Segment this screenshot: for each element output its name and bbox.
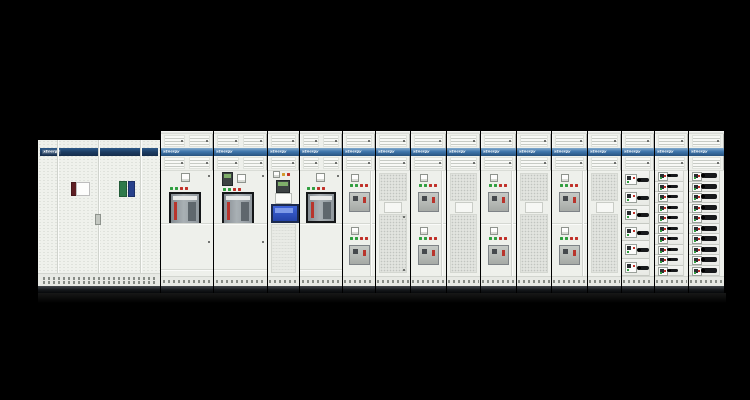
roof: [411, 131, 446, 134]
brand-label: xEnergy: [657, 150, 673, 154]
bottom-vent-strip: [376, 276, 410, 286]
indicator-lights: [489, 237, 507, 240]
brand-stripe: xEnergy: [622, 148, 654, 156]
drawer-stack: [622, 171, 650, 276]
door-seam: [98, 140, 99, 273]
panel-seam: [57, 140, 58, 273]
screw: [403, 216, 405, 218]
indicator-light: [499, 184, 502, 187]
brand-stripe: xEnergy: [343, 148, 375, 156]
drawer-module-face: [658, 256, 668, 265]
brand-label: xEnergy: [590, 150, 606, 154]
drawer-module-face: [625, 209, 637, 220]
door-tag-blue: [128, 181, 135, 197]
vent-band: [379, 157, 407, 169]
indicator-light: [360, 237, 363, 240]
drawer-unit: [622, 259, 649, 277]
cabinet-4-control-hmi: xEnergy: [268, 131, 299, 293]
indicator-light: [504, 237, 507, 240]
drawer-unit: [689, 266, 719, 277]
bottom-vent-strip: [214, 276, 267, 286]
drawer-handle[interactable]: [703, 194, 717, 199]
drawer-unit: [689, 182, 719, 193]
test-button[interactable]: [490, 227, 498, 235]
plinth: [161, 286, 213, 293]
equipment-door: [552, 170, 587, 276]
vent-band: [414, 157, 443, 169]
drawer-handle[interactable]: [639, 248, 649, 252]
mccb-breaker-window: [488, 192, 509, 212]
reset-button[interactable]: [237, 174, 246, 183]
plinth: [300, 286, 342, 293]
indicator-light: [322, 187, 325, 190]
indicator-light: [660, 188, 662, 190]
indicator-light: [660, 240, 662, 242]
indicator-light: [660, 177, 662, 179]
indicator-light: [660, 219, 662, 221]
brand-stripe: xEnergy: [376, 148, 410, 156]
indicator-light: [504, 184, 507, 187]
drawer-handle[interactable]: [669, 216, 678, 219]
brand-label: xEnergy: [483, 150, 499, 154]
plinth: [655, 286, 688, 293]
floor-reflection: [38, 293, 726, 303]
plinth: [343, 286, 375, 293]
indicator-light: [575, 184, 578, 187]
indicator-light: [489, 184, 492, 187]
mesh-panel-upper: [379, 173, 407, 201]
mccb-breaker-window: [418, 192, 439, 212]
vent-band: [658, 135, 685, 147]
drawer-unit: [655, 224, 683, 235]
door-seam: [214, 223, 267, 224]
indicator-light: [627, 199, 629, 201]
brand-stripe: xEnergy: [268, 148, 299, 156]
equipment-door: [588, 170, 621, 276]
drawer-unit: [655, 203, 683, 214]
indicator-light: [627, 216, 629, 218]
drawer-module-face: [658, 235, 668, 244]
vent-band: [625, 157, 651, 169]
drawer-unit: [622, 241, 649, 259]
bottom-vent-strip: [552, 276, 587, 286]
drawer-stack: [689, 171, 720, 276]
brand-stripe: xEnergy: [552, 148, 587, 156]
plinth: [517, 286, 551, 293]
indicator-light: [489, 237, 492, 240]
cabinet-1-perforated-double-door: xEnergy: [38, 140, 160, 293]
equipment-door: [622, 170, 654, 276]
plinth: [689, 286, 724, 293]
drawer-handle[interactable]: [669, 237, 678, 240]
vent-band: [217, 135, 264, 147]
equipment-door: [376, 170, 410, 276]
drawer-handle[interactable]: [669, 195, 678, 198]
drawer-handle[interactable]: [703, 184, 717, 189]
bottom-vent-strip: [38, 273, 160, 286]
vent-band: [555, 157, 584, 169]
brand-stripe: xEnergy: [481, 148, 516, 156]
drawer-handle[interactable]: [703, 173, 717, 178]
control-button[interactable]: [273, 171, 280, 178]
brand-label: xEnergy: [216, 150, 232, 154]
drawer-module-face: [658, 214, 668, 223]
label-plate: [275, 193, 292, 204]
indicator-light: [350, 184, 353, 187]
acb-face: [171, 194, 199, 223]
side-rail-seam: [441, 171, 442, 276]
cabinet-14-withdrawable-modules: xEnergy: [622, 131, 654, 293]
brand-label: xEnergy: [345, 150, 361, 154]
equipment-door: [481, 170, 516, 276]
indicator-light: [419, 184, 422, 187]
perforated-doors: xEnergy: [38, 140, 160, 273]
air-circuit-breaker-window: [222, 192, 254, 225]
indicator-light: [694, 230, 696, 232]
drawer-unit: [655, 192, 683, 203]
indicator-lights: [560, 237, 578, 240]
brand-label: xEnergy: [163, 150, 179, 154]
bottom-vent-strip: [481, 276, 516, 286]
drawer-handle[interactable]: [639, 178, 649, 182]
indicator-lights: [350, 237, 368, 240]
reset-button[interactable]: [181, 173, 190, 182]
indicator-lights: [419, 237, 437, 240]
brand-stripe: xEnergy: [689, 148, 724, 156]
drawer-unit: [689, 255, 719, 266]
indicator-lights: [560, 184, 578, 187]
equipment-door: [300, 170, 342, 276]
screw: [208, 175, 210, 177]
plinth: [268, 286, 299, 293]
brand-label: xEnergy: [302, 150, 318, 154]
plinth: [447, 286, 480, 293]
indicator-light: [233, 188, 236, 191]
bottom-vent-strip: [622, 276, 654, 286]
plinth: [622, 286, 654, 293]
plinth: [588, 286, 621, 293]
vent-band: [520, 135, 548, 147]
drawer-handle[interactable]: [669, 185, 678, 188]
vent-band: [379, 135, 407, 147]
drawer-unit: [622, 224, 649, 242]
brand-label: xEnergy: [519, 150, 535, 154]
brand-label: xEnergy: [624, 150, 640, 154]
indicator-light: [238, 188, 241, 191]
bottom-vent-strip: [655, 276, 688, 286]
indicator-light: [355, 184, 358, 187]
mccb-breaker-window: [559, 245, 580, 265]
vent-band: [484, 135, 513, 147]
drawer-unit: [655, 213, 683, 224]
test-button[interactable]: [561, 174, 569, 182]
mccb-face: [560, 246, 579, 264]
drawer-handle[interactable]: [669, 248, 678, 251]
drawer-unit: [689, 234, 719, 245]
indicator-light: [694, 261, 696, 263]
reset-button[interactable]: [316, 173, 325, 182]
equipment-door: [268, 170, 299, 276]
cabinet-16-withdrawable-modules-dense: xEnergy: [689, 131, 724, 293]
drawer-handle[interactable]: [703, 268, 717, 273]
roof: [655, 131, 688, 134]
brand-stripe: xEnergy: [411, 148, 446, 156]
screw: [262, 241, 264, 243]
drawer-module-face: [625, 192, 637, 203]
drawer-handle[interactable]: [703, 247, 717, 252]
test-button[interactable]: [420, 174, 428, 182]
drawer-unit: [655, 234, 683, 245]
roof: [588, 131, 621, 134]
indicator-lights: [489, 184, 507, 187]
bottom-vent-strip: [161, 276, 213, 286]
mesh-panel-lower: [591, 214, 618, 273]
vent-band: [555, 135, 584, 147]
side-rail-seam: [582, 171, 583, 276]
drawer-module-face: [625, 244, 637, 255]
drawer-handle[interactable]: [639, 196, 649, 200]
drawer-unit: [689, 245, 719, 256]
indicator-light: [560, 237, 563, 240]
drawer-handle[interactable]: [639, 231, 649, 235]
test-button[interactable]: [351, 174, 359, 182]
roof: [214, 131, 267, 134]
drawer-unit: [689, 213, 719, 224]
indicator-light: [494, 237, 497, 240]
drawer-handle[interactable]: [669, 258, 678, 261]
indicator-light: [355, 237, 358, 240]
drawer-handle[interactable]: [703, 226, 717, 231]
cabinet-5-acb-incomer: xEnergy: [300, 131, 342, 293]
power-meter: [276, 180, 290, 193]
drawer-handle[interactable]: [703, 215, 717, 220]
drawer-unit: [655, 245, 683, 256]
panel-seam: [140, 140, 141, 273]
roof: [689, 131, 724, 134]
vent-band: [346, 135, 372, 147]
drawer-handle[interactable]: [703, 257, 717, 262]
vent-band: [414, 135, 443, 147]
mesh-panel-lower: [520, 214, 548, 273]
mccb-face: [560, 193, 579, 211]
cabinet-12-mccb-feeder: xEnergy: [552, 131, 587, 293]
vent-band: [692, 135, 721, 147]
brand-label: xEnergy: [449, 150, 465, 154]
drawer-unit: [655, 182, 683, 193]
cabinet-7-mesh-door: xEnergy: [376, 131, 410, 293]
indicator-light: [228, 188, 231, 191]
indicator-light: [627, 251, 629, 253]
drawer-module-face: [658, 193, 668, 202]
vent-band: [625, 135, 651, 147]
indicator-light: [627, 181, 629, 183]
door-seam: [300, 269, 342, 270]
brand-stripe: xEnergy: [300, 148, 342, 156]
screw: [403, 269, 405, 271]
brand-stripe: xEnergy: [447, 148, 480, 156]
test-button[interactable]: [561, 227, 569, 235]
vent-band: [692, 157, 721, 169]
drawer-module-face: [658, 172, 668, 181]
cabinet-8-mccb-feeder: xEnergy: [411, 131, 446, 293]
drawer-module-face: [625, 174, 637, 185]
plinth: [552, 286, 587, 293]
drawer-handle[interactable]: [703, 205, 717, 210]
vent-band: [484, 157, 513, 169]
door-tag-green: [119, 181, 127, 197]
plinth: [38, 286, 160, 293]
drawer-stack: [655, 171, 684, 276]
drawer-handle[interactable]: [639, 266, 649, 270]
mccb-face: [419, 193, 438, 211]
roof: [343, 131, 375, 134]
cabinet-10-mccb-feeder: xEnergy: [481, 131, 516, 293]
equipment-door: [343, 170, 375, 276]
equipment-door: [655, 170, 688, 276]
indicator-light: [694, 209, 696, 211]
indicator-light: [175, 187, 178, 190]
plinth: [481, 286, 516, 293]
mccb-face: [350, 246, 369, 264]
indicator-light: [694, 188, 696, 190]
indicator-light: [570, 184, 573, 187]
vent-band: [591, 157, 618, 169]
indicator-lights: [307, 187, 325, 190]
drawer-handle[interactable]: [639, 213, 649, 217]
mccb-breaker-window: [349, 192, 370, 212]
bottom-vent-strip: [300, 276, 342, 286]
indicator-light: [660, 272, 662, 274]
drawer-unit: [689, 203, 719, 214]
roof: [517, 131, 551, 134]
indicator-light: [694, 198, 696, 200]
test-button[interactable]: [351, 227, 359, 235]
mesh-panel-lower: [450, 214, 477, 273]
hmi-screen: [273, 206, 297, 221]
indicator-light: [424, 237, 427, 240]
indicator-light: [694, 272, 696, 274]
drawer-unit: [689, 224, 719, 235]
vent-band: [164, 135, 210, 147]
vent-band: [217, 157, 264, 169]
vent-band: [271, 157, 296, 169]
mccb-face: [419, 246, 438, 264]
drawer-handle[interactable]: [669, 174, 678, 177]
vent-band: [271, 135, 296, 147]
bottom-vent-strip: [689, 276, 724, 286]
brand-stripe: xEnergy: [588, 148, 621, 156]
vent-band: [450, 135, 477, 147]
door-seam: [161, 269, 213, 270]
mccb-breaker-window: [418, 245, 439, 265]
equipment-door: [161, 170, 213, 276]
indicator-light: [434, 184, 437, 187]
indicator-light: [494, 184, 497, 187]
side-rail-seam: [511, 171, 512, 276]
switchgear-lineup: xEnergy xEnergy: [38, 131, 724, 293]
equipment-door: [214, 170, 267, 276]
screw: [337, 175, 339, 177]
roof: [161, 131, 213, 134]
drawer-handle[interactable]: [669, 206, 678, 209]
vent-band: [520, 157, 548, 169]
indicator-light: [627, 269, 629, 271]
indicator-lights: [223, 188, 241, 191]
drawer-handle[interactable]: [703, 236, 717, 241]
cabinet-6-mccb-feeder: xEnergy: [343, 131, 375, 293]
indicator-light: [694, 251, 696, 253]
indicator-light: [360, 184, 363, 187]
brand-label: xEnergy: [413, 150, 429, 154]
indicator-light: [317, 187, 320, 190]
indicator-light: [627, 234, 629, 236]
indicator-light: [694, 177, 696, 179]
door-seam: [161, 223, 213, 224]
drawer-unit: [655, 266, 683, 277]
mesh-panel-upper: [450, 173, 477, 201]
bottom-vent-strip: [517, 276, 551, 286]
acb-face: [308, 194, 334, 221]
drawer-unit: [689, 171, 719, 182]
indicator-light: [312, 187, 315, 190]
brand-label: xEnergy: [42, 150, 61, 155]
hmi-touch-panel[interactable]: [271, 204, 299, 223]
indicator-light: [499, 237, 502, 240]
drawer-unit: [622, 189, 649, 207]
mccb-face: [350, 193, 369, 211]
vent-band: [450, 157, 477, 169]
plinth: [411, 286, 446, 293]
indicator-light: [185, 187, 188, 190]
test-button[interactable]: [490, 174, 498, 182]
door-handle[interactable]: [95, 214, 101, 225]
indicator-light: [365, 237, 368, 240]
air-circuit-breaker-window: [169, 192, 201, 225]
equipment-door: [689, 170, 724, 276]
indicator-light: [575, 237, 578, 240]
drawer-handle[interactable]: [669, 269, 678, 272]
indicator-light: [570, 237, 573, 240]
cabinet-2-acb-incomer: xEnergy: [161, 131, 213, 293]
drawer-unit: [622, 206, 649, 224]
cabinet-13-mesh-door: xEnergy: [588, 131, 621, 293]
brand-label: xEnergy: [378, 150, 394, 154]
mccb-face: [489, 246, 508, 264]
indicator-light: [660, 198, 662, 200]
cabinet-3-acb-incomer: xEnergy: [214, 131, 267, 293]
cabinet-15-withdrawable-modules-dense: xEnergy: [655, 131, 688, 293]
drawer-unit: [655, 255, 683, 266]
mccb-breaker-window: [488, 245, 509, 265]
drawer-handle[interactable]: [669, 227, 678, 230]
indicator-lights: [282, 173, 290, 176]
drawer-module-face: [625, 262, 637, 273]
equipment-door: [517, 170, 551, 276]
acb-face: [224, 194, 252, 223]
drawer-unit: [622, 171, 649, 189]
indicator-light: [287, 173, 290, 176]
indicator-light: [660, 230, 662, 232]
test-button[interactable]: [420, 227, 428, 235]
mccb-face: [489, 193, 508, 211]
brand-stripe: xEnergy: [655, 148, 688, 156]
indicator-light: [307, 187, 310, 190]
vent-band: [303, 135, 339, 147]
brand-label: xEnergy: [554, 150, 570, 154]
roof: [552, 131, 587, 134]
roof: [481, 131, 516, 134]
air-circuit-breaker-window: [306, 192, 336, 223]
